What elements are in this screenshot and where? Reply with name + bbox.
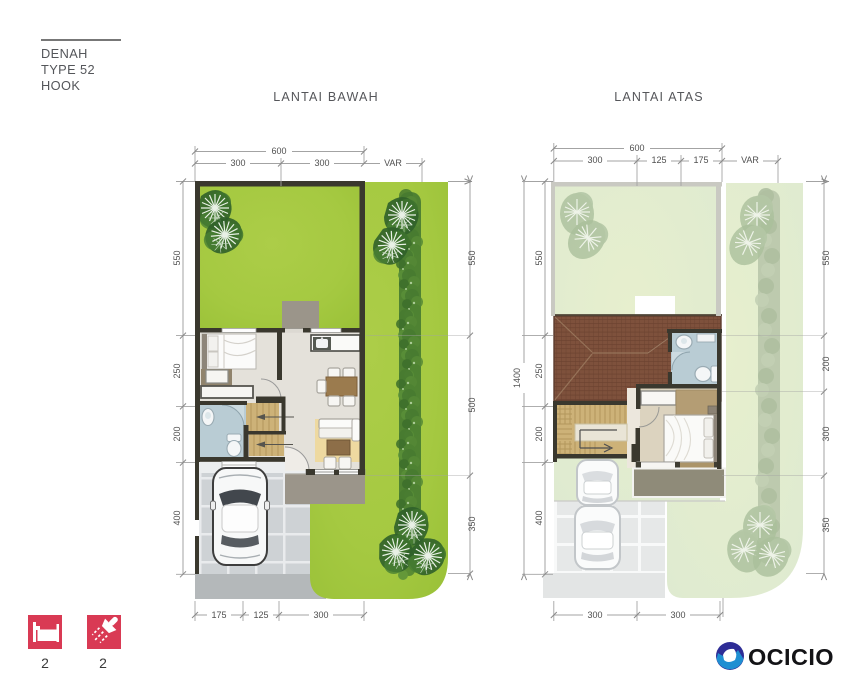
svg-text:LANTAI BAWAH: LANTAI BAWAH [273, 90, 379, 104]
svg-text:300: 300 [230, 158, 245, 168]
svg-text:VAR: VAR [741, 155, 759, 165]
svg-text:250: 250 [172, 363, 182, 378]
svg-text:600: 600 [271, 146, 286, 156]
svg-text:VAR: VAR [384, 158, 402, 168]
svg-text:TYPE 52: TYPE 52 [41, 62, 95, 77]
svg-text:LANTAI ATAS: LANTAI ATAS [614, 90, 704, 104]
svg-text:125: 125 [253, 610, 268, 620]
svg-text:HOOK: HOOK [41, 78, 80, 93]
svg-text:200: 200 [172, 426, 182, 441]
svg-text:300: 300 [314, 158, 329, 168]
svg-text:2: 2 [41, 655, 49, 671]
svg-text:550: 550 [467, 250, 477, 265]
svg-text:200: 200 [534, 426, 544, 441]
svg-text:550: 550 [821, 250, 831, 265]
svg-text:350: 350 [821, 517, 831, 532]
svg-text:500: 500 [467, 397, 477, 412]
svg-text:1400: 1400 [512, 368, 522, 388]
svg-text:OCICIO: OCICIO [748, 644, 834, 670]
svg-text:300: 300 [313, 610, 328, 620]
svg-text:550: 550 [534, 250, 544, 265]
svg-text:250: 250 [534, 363, 544, 378]
svg-text:400: 400 [172, 510, 182, 525]
svg-text:175: 175 [693, 155, 708, 165]
svg-text:200: 200 [821, 356, 831, 371]
svg-text:600: 600 [629, 143, 644, 153]
svg-text:350: 350 [467, 516, 477, 531]
svg-text:175: 175 [211, 610, 226, 620]
svg-text:125: 125 [651, 155, 666, 165]
svg-text:300: 300 [587, 155, 602, 165]
svg-text:300: 300 [670, 610, 685, 620]
svg-text:400: 400 [534, 510, 544, 525]
svg-text:300: 300 [587, 610, 602, 620]
svg-text:2: 2 [99, 655, 107, 671]
svg-text:300: 300 [821, 426, 831, 441]
svg-text:DENAH: DENAH [41, 46, 88, 61]
svg-text:550: 550 [172, 250, 182, 265]
